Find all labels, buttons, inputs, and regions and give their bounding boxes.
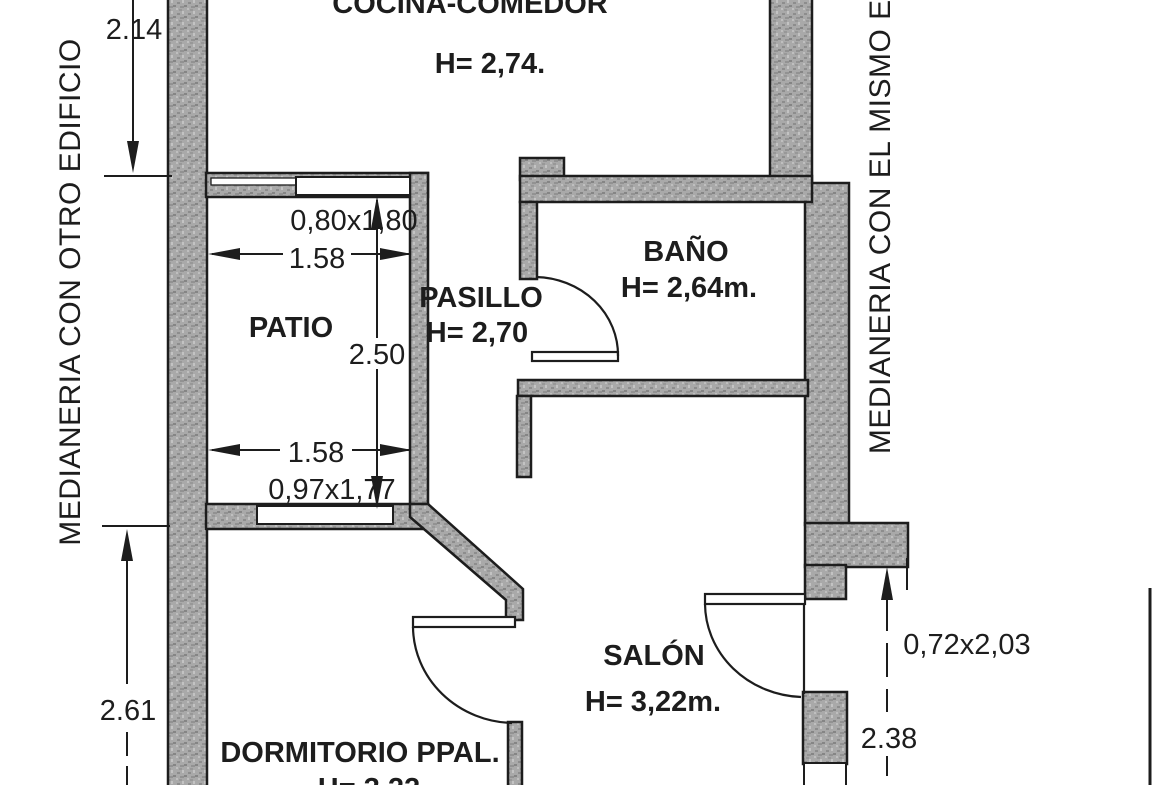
patio-bottom-window (257, 506, 393, 524)
party-wall-label-left: MEDIANERIA CON OTRO EDIFICIO (54, 38, 87, 545)
dim-158b-arrow-right (380, 444, 412, 456)
walls (168, 0, 908, 785)
room-label-bano: BAÑO (643, 234, 728, 268)
room-height-dormitorio: H= 3,22 (318, 773, 420, 785)
party-wall-right-mid (805, 565, 846, 599)
room-label-salon: SALÓN (603, 638, 705, 672)
hall-living-divider (517, 396, 531, 477)
dim-label-158-top: 1.58 (289, 243, 345, 275)
party-wall-right-lower (803, 692, 847, 764)
dim-072-arrow (881, 567, 893, 600)
living-door-leaf (705, 594, 805, 604)
dim-label-158-bottom: 1.58 (288, 437, 344, 469)
dim-158a-arrow-right (380, 248, 412, 260)
bathroom-left-wall (520, 202, 537, 279)
floor-plan: COCINA-COMEDOR H= 2,74. PATIO PASILLO H=… (0, 0, 1154, 785)
room-label-pasillo: PASILLO (419, 282, 543, 314)
bottom-right-window (804, 763, 846, 785)
room-label-cocina: COCINA-COMEDOR (332, 0, 608, 20)
living-door-arc (705, 604, 801, 697)
bathroom-top-wall (520, 176, 812, 202)
dim-158a-arrow-left (208, 248, 240, 260)
dim-label-window-top: 0,80x1,80 (290, 205, 417, 237)
room-label-patio: PATIO (249, 312, 333, 344)
patio-top-wall-inner-line (211, 178, 297, 185)
room-height-cocina: H= 2,74. (435, 48, 545, 80)
bedroom-door-arc (413, 627, 512, 723)
party-wall-right-top (770, 0, 812, 192)
party-wall-label-right: MEDIANERIA CON EL MISMO EDIFICIO (864, 0, 897, 454)
room-height-bano: H= 2,64m. (621, 272, 757, 304)
dim-158b-arrow-left (208, 444, 240, 456)
party-wall-left (168, 0, 207, 785)
dim-label-window-bottom: 0,97x1,77 (268, 474, 395, 506)
room-height-salon: H= 3,22m. (585, 686, 721, 718)
bedroom-living-divider (508, 722, 522, 785)
dim-label-214: 2.14 (106, 14, 162, 46)
dim-label-261: 2.61 (100, 695, 156, 727)
room-label-dormitorio: DORMITORIO PPAL. (220, 737, 499, 769)
diagonal-wall (410, 504, 523, 620)
floor-plan-drawing: COCINA-COMEDOR H= 2,74. PATIO PASILLO H=… (0, 0, 1154, 785)
bathroom-door-arc (536, 277, 618, 356)
party-wall-right-upper (805, 183, 849, 525)
dim-214-arrow (127, 141, 139, 173)
dim-261-arrow (121, 529, 133, 561)
party-wall-right-pillar (805, 523, 908, 567)
dim-label-250: 2.50 (349, 339, 405, 371)
patio-top-window (296, 177, 410, 195)
dim-label-072: 0,72x2,03 (903, 629, 1030, 661)
bathroom-door-leaf (532, 352, 618, 361)
dim-label-238: 2.38 (861, 723, 917, 755)
bedroom-door-leaf (413, 617, 515, 627)
bathroom-bottom-wall (518, 380, 808, 396)
room-height-pasillo: H= 2,70 (426, 317, 528, 349)
